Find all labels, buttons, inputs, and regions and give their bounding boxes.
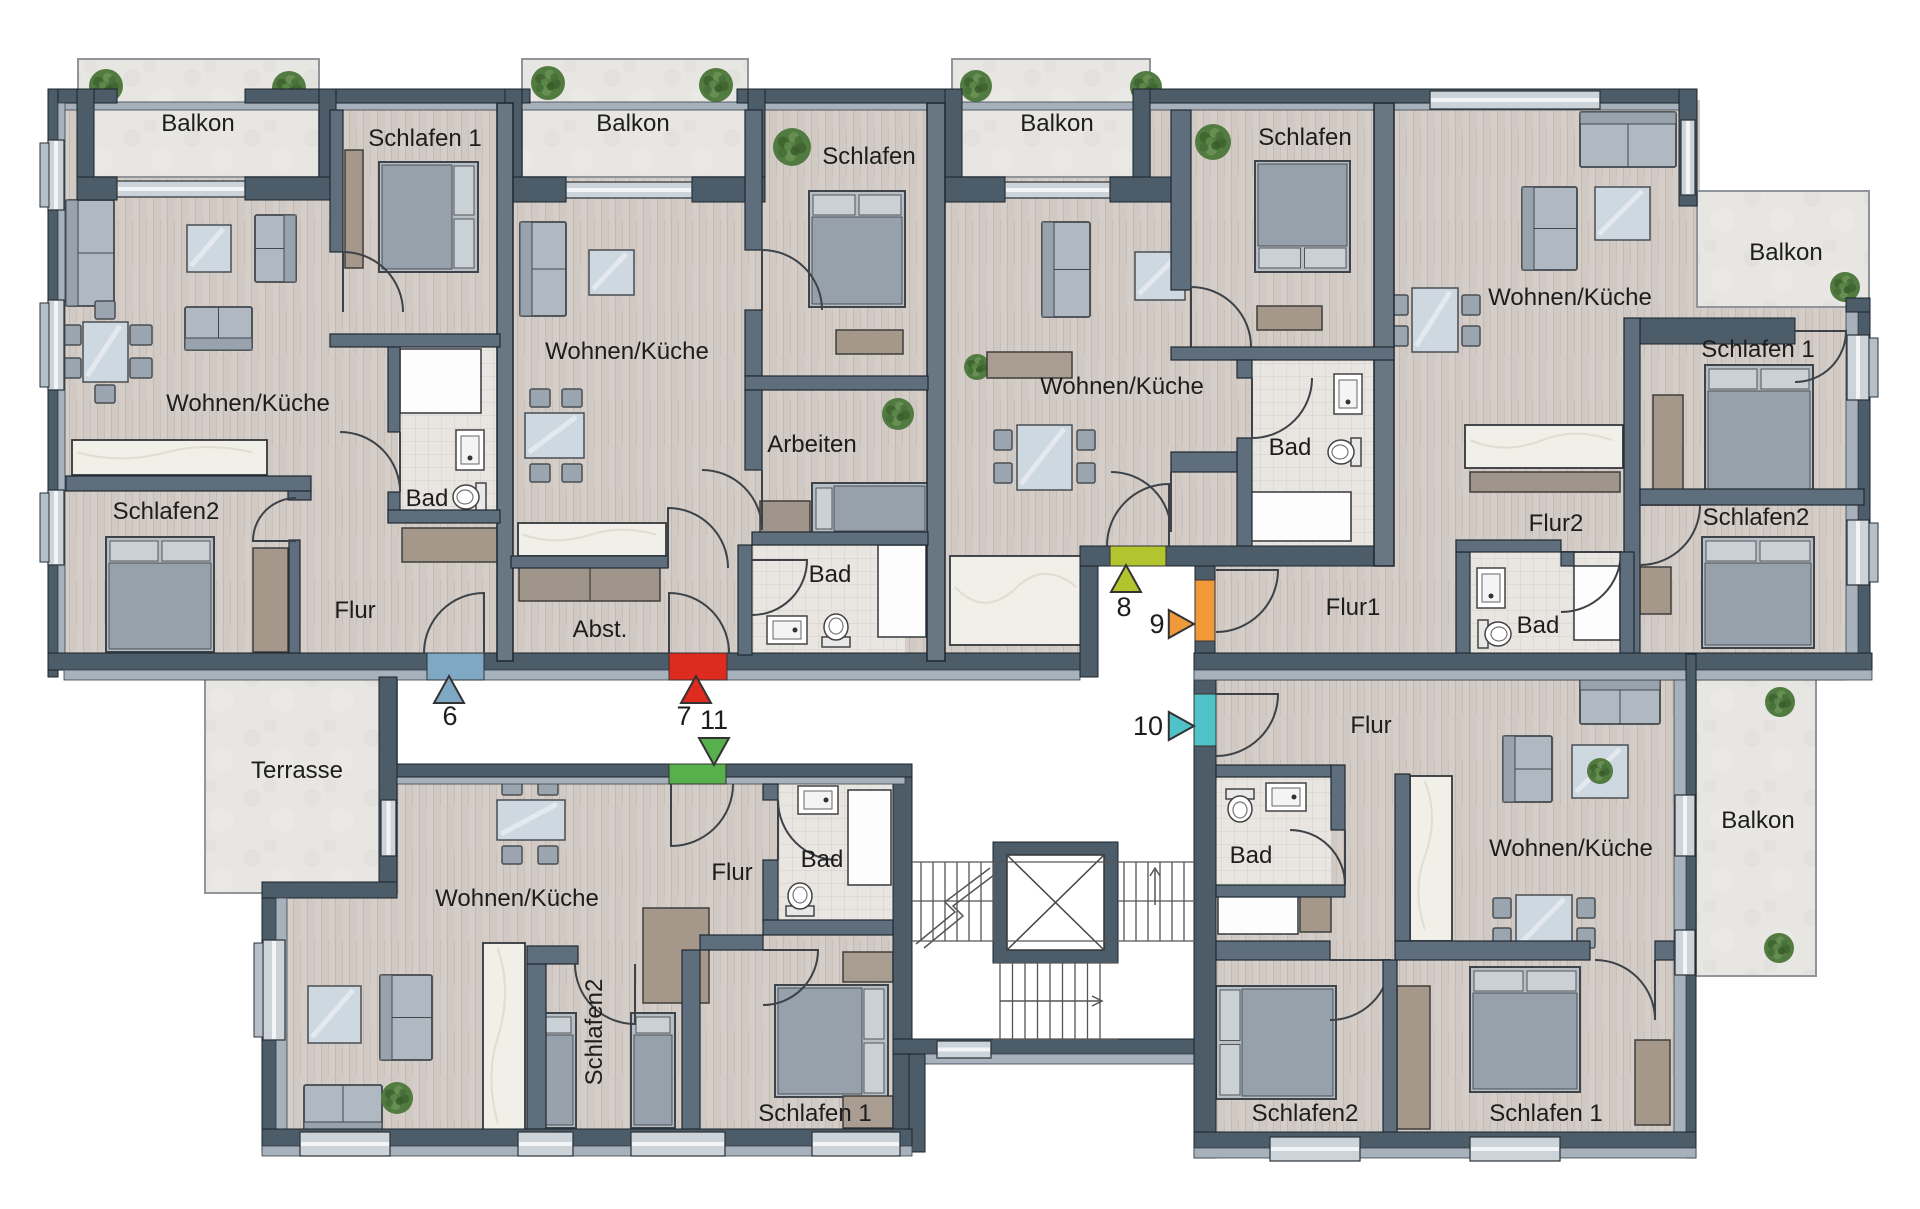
svg-text:Bad: Bad (1269, 434, 1312, 461)
svg-text:Arbeiten: Arbeiten (767, 431, 856, 458)
svg-text:Schlafen 1: Schlafen 1 (1701, 336, 1814, 363)
svg-text:Schlafen2: Schlafen2 (1252, 1100, 1359, 1127)
svg-text:10: 10 (1133, 711, 1163, 741)
svg-text:7: 7 (676, 701, 691, 731)
svg-text:6: 6 (442, 701, 457, 731)
svg-text:Wohnen/Küche: Wohnen/Küche (1489, 835, 1653, 862)
svg-text:9: 9 (1149, 609, 1164, 639)
svg-text:Bad: Bad (1230, 842, 1273, 869)
svg-text:Wohnen/Küche: Wohnen/Küche (1488, 284, 1652, 311)
svg-text:Schlafen: Schlafen (822, 143, 915, 170)
svg-text:Flur2: Flur2 (1529, 510, 1584, 537)
svg-text:Wohnen/Küche: Wohnen/Küche (1040, 373, 1204, 400)
svg-text:Flur: Flur (711, 859, 752, 886)
svg-text:11: 11 (700, 705, 728, 735)
svg-text:Schlafen2: Schlafen2 (1703, 504, 1810, 531)
svg-text:Schlafen 1: Schlafen 1 (1489, 1100, 1602, 1127)
svg-text:Balkon: Balkon (161, 110, 234, 137)
svg-text:Wohnen/Küche: Wohnen/Küche (545, 338, 709, 365)
svg-text:Flur1: Flur1 (1326, 594, 1381, 621)
svg-text:Bad: Bad (809, 561, 852, 588)
svg-text:Schlafen 1: Schlafen 1 (758, 1100, 871, 1127)
svg-text:8: 8 (1116, 592, 1131, 622)
svg-text:Flur: Flur (334, 597, 375, 624)
svg-text:Flur: Flur (1350, 712, 1391, 739)
svg-text:Terrasse: Terrasse (251, 757, 343, 784)
svg-text:Balkon: Balkon (1721, 807, 1794, 834)
svg-text:Schlafen2: Schlafen2 (581, 979, 608, 1086)
svg-text:Wohnen/Küche: Wohnen/Küche (435, 885, 599, 912)
svg-text:Schlafen2: Schlafen2 (113, 498, 220, 525)
svg-text:Balkon: Balkon (596, 110, 669, 137)
svg-text:Abst.: Abst. (573, 616, 628, 643)
svg-text:Bad: Bad (801, 846, 844, 873)
svg-text:Bad: Bad (406, 485, 449, 512)
svg-text:Schlafen: Schlafen (1258, 124, 1351, 151)
svg-text:Schlafen 1: Schlafen 1 (368, 125, 481, 152)
svg-text:Balkon: Balkon (1020, 110, 1093, 137)
svg-text:Wohnen/Küche: Wohnen/Küche (166, 390, 330, 417)
svg-text:Bad: Bad (1517, 612, 1560, 639)
svg-text:Balkon: Balkon (1749, 239, 1822, 266)
